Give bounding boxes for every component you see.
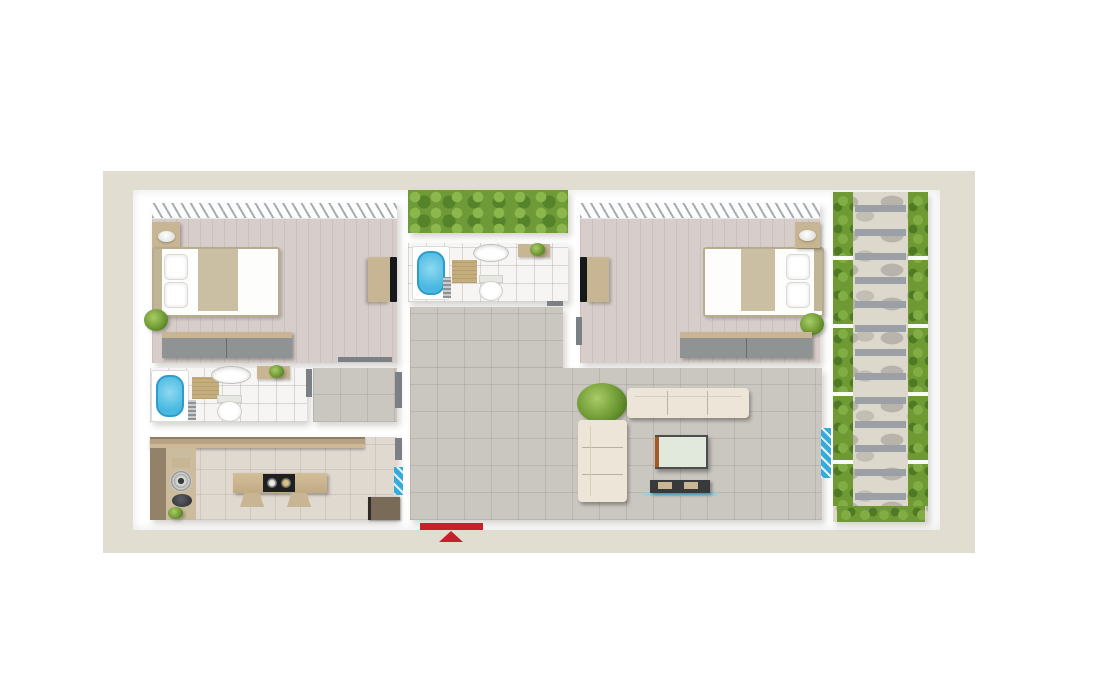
potted-plant-icon: [168, 507, 183, 519]
wardrobe-seam: [226, 338, 227, 358]
sofa-backrest: [590, 426, 591, 496]
tv-icon: [580, 257, 587, 302]
potted-plant-icon: [577, 383, 627, 423]
room-bathroom-2: [150, 368, 307, 422]
media-device: [658, 482, 672, 489]
double-bed: [703, 247, 824, 317]
room-hall-left: [313, 368, 397, 422]
kitchen-door: [395, 438, 402, 460]
entrance-arrow-icon: [439, 531, 463, 542]
tv-cabinet: [368, 257, 390, 302]
towel-rail: [443, 277, 451, 298]
kitchen-counter: [150, 437, 365, 448]
bathroom-2-door: [306, 369, 312, 397]
bed-pillow: [786, 254, 810, 280]
bed-duvet-band: [198, 249, 238, 311]
two-seat-sofa: [578, 420, 627, 502]
toilet-bowl: [217, 401, 242, 422]
floor-plan: [0, 0, 1096, 693]
wardrobe: [162, 332, 292, 358]
lamp-icon: [158, 231, 175, 242]
three-seat-sofa: [627, 388, 749, 418]
shelf-plant-icon: [530, 243, 545, 256]
room-bathroom-1: [408, 243, 568, 302]
window-curtain: [580, 203, 820, 219]
side-garden: [833, 192, 928, 522]
potted-plant-icon: [144, 309, 168, 331]
double-bed: [152, 247, 280, 317]
cushion-seam: [667, 391, 668, 415]
garden-glass-door: [821, 428, 831, 478]
washbasin: [473, 244, 509, 262]
bathtub-water: [417, 251, 445, 295]
table-edge-accent: [655, 437, 659, 467]
entrance-threshold: [420, 523, 483, 530]
bedroom-1-door: [338, 357, 392, 362]
lamp-icon: [799, 230, 816, 241]
wardrobe-seam: [746, 338, 747, 358]
bed-pillow: [164, 254, 188, 280]
tv-icon: [390, 257, 397, 302]
room-hallway: [410, 307, 563, 368]
media-device: [684, 482, 698, 489]
bed-pillow: [164, 282, 188, 308]
shelf-plant-icon: [269, 365, 284, 378]
bathroom-1-door: [547, 301, 563, 306]
entry-glass-panel: [394, 467, 403, 495]
bath-mat: [452, 260, 477, 283]
nightstand: [152, 222, 180, 250]
bathtub-water: [156, 375, 184, 417]
garden-bushes-bottom: [837, 506, 925, 522]
chair: [240, 493, 264, 507]
room-bedroom-2: [580, 203, 820, 363]
nightstand: [795, 222, 820, 248]
toilet: [477, 275, 503, 300]
kitchen-sink: [172, 494, 192, 507]
tv-stand: [650, 480, 710, 493]
toilet: [215, 395, 242, 421]
cushion-seam: [707, 391, 708, 415]
cooktop-burner-icon: [281, 478, 291, 488]
window-curtain: [152, 203, 397, 219]
washbasin: [211, 366, 251, 384]
hob-burner-icon: [170, 470, 192, 492]
bedroom-2-door: [576, 317, 582, 345]
garden-bushes-left: [833, 192, 853, 506]
bed-headboard: [814, 249, 822, 311]
room-living: [410, 368, 822, 520]
cutting-board: [172, 458, 190, 468]
island-cooktop: [263, 474, 295, 492]
sofa-backrest: [635, 396, 741, 397]
room-bedroom-1: [152, 203, 397, 363]
kitchen-cabinet: [368, 497, 400, 520]
towel-rail: [188, 400, 196, 420]
toilet-bowl: [479, 281, 503, 301]
garden-bushes-right: [908, 192, 928, 506]
stepping-slats: [855, 205, 906, 505]
cooktop-burner-icon: [267, 478, 277, 488]
bed-pillow: [786, 282, 810, 308]
tv-cabinet: [587, 257, 609, 302]
patio-hedge: [408, 190, 568, 233]
bathtub: [151, 370, 189, 422]
chair: [287, 493, 311, 507]
bed-headboard: [154, 249, 162, 311]
hall-door: [395, 372, 402, 408]
cushion-seam: [582, 447, 623, 448]
dining-table: [655, 435, 708, 469]
cushion-seam: [582, 474, 623, 475]
room-kitchen: [150, 437, 397, 520]
bed-duvet-band: [741, 249, 775, 311]
wardrobe: [680, 332, 812, 358]
